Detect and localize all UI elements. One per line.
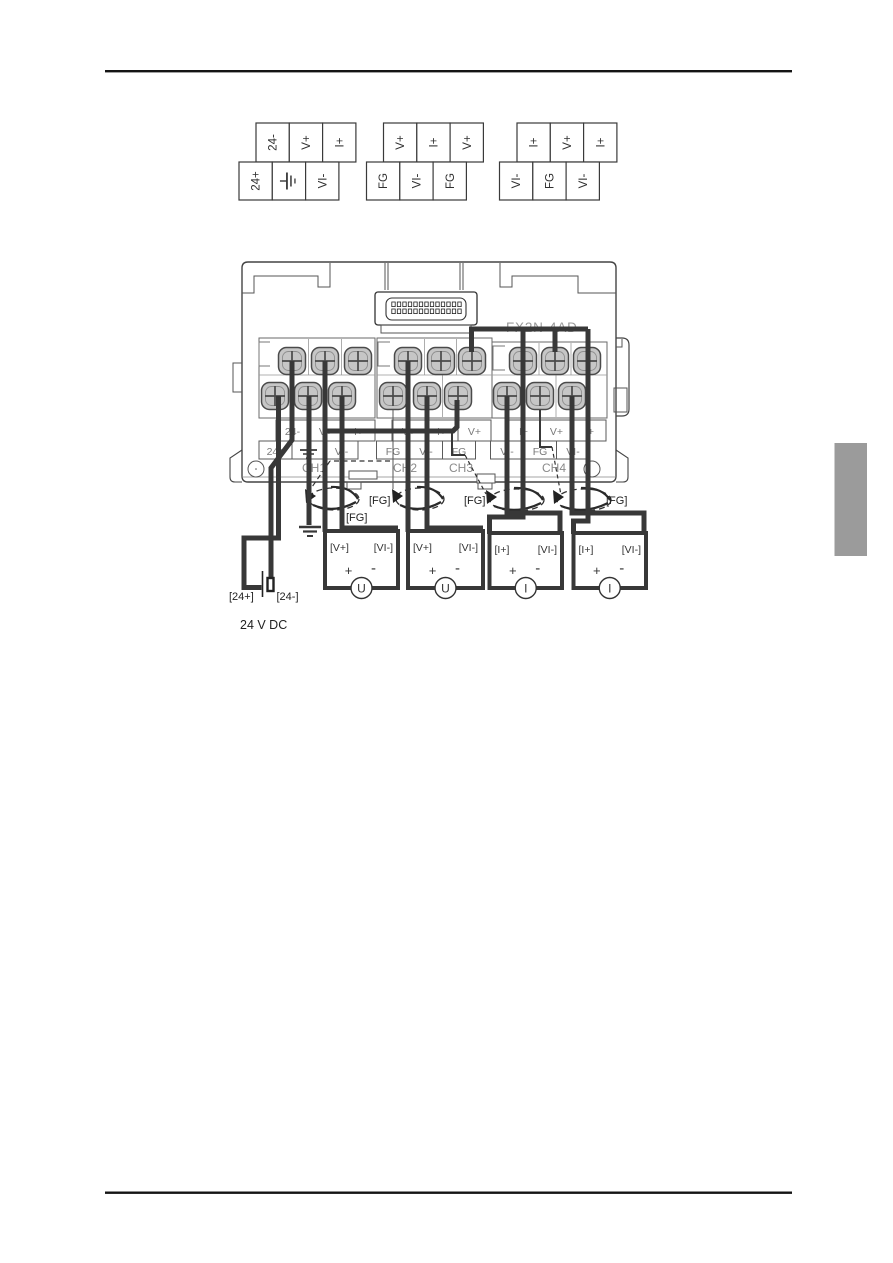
manual-page: 24-V+I+24+VI-V+I+V+FGVI-FGI+V+I+VI-FGVI-… <box>0 0 893 1263</box>
source-plus-sign: + <box>345 563 353 578</box>
meter-type-label: I <box>524 582 527 596</box>
module-terminal-label: V+ <box>550 426 563 438</box>
case-step-right <box>500 263 616 293</box>
channel-label: CH2 <box>393 461 417 475</box>
module-terminal-label: FG <box>452 446 467 458</box>
earth-ground-icon <box>299 527 321 536</box>
ref-terminal-label: 24- <box>268 134 280 151</box>
case-right-notch <box>616 339 622 347</box>
case-left-bracket <box>233 363 242 392</box>
module-terminal-label: V+ <box>468 426 481 438</box>
shield-arrowhead <box>392 489 403 503</box>
signal-source-box: [V+][VI-]+-U <box>408 531 483 599</box>
source-minus-sign: - <box>371 560 376 577</box>
connector-pin <box>430 309 433 314</box>
terminal-screw-icon <box>428 348 455 375</box>
connector-pin <box>408 302 411 307</box>
source-minus-sign: - <box>619 560 624 577</box>
battery-negative-label: [24-] <box>277 591 299 603</box>
meter-type-label: U <box>357 582 366 596</box>
battery-plate-short <box>268 578 274 591</box>
case-step-left <box>242 263 330 293</box>
case-foot-left <box>347 482 361 489</box>
source-neg-label: [VI-] <box>622 544 641 556</box>
module-left-ear <box>230 450 242 482</box>
connector-pin <box>414 309 417 314</box>
ref-terminal-label: VI- <box>317 173 329 188</box>
shielded-twisted-pair-icon <box>553 488 611 511</box>
ref-terminal-label: I+ <box>428 137 440 147</box>
connector-pin <box>408 309 411 314</box>
terminal-screw-icon <box>527 383 554 410</box>
connector-pin <box>403 302 406 307</box>
source-pos-label: [V+] <box>413 542 432 554</box>
source-pos-label: [I+] <box>495 544 510 556</box>
fg-label-ch4: [FG] <box>606 495 627 507</box>
connector-pin <box>458 309 461 314</box>
wire-ch4-vi-minus <box>572 396 644 534</box>
fg-label-ch1: [FG] <box>346 512 367 524</box>
module-right-ear <box>616 450 628 482</box>
signal-sources: [V+][VI-]+-U[V+][VI-]+-U[I+][VI-]+-I[I+]… <box>325 531 646 599</box>
ref-terminal-label: V+ <box>462 135 474 150</box>
ref-terminal-label: FG <box>544 173 556 189</box>
ref-terminal-label: I+ <box>334 137 346 147</box>
signal-source-box: [I+][VI-]+-I <box>490 533 563 599</box>
source-pos-label: [I+] <box>579 544 594 556</box>
ref-terminal-label: VI- <box>511 173 523 188</box>
extension-connector <box>375 292 477 333</box>
ref-terminal-label: I+ <box>595 137 607 147</box>
connector-pin <box>452 302 455 307</box>
connector-pin <box>436 309 439 314</box>
source-neg-label: [VI-] <box>538 544 557 556</box>
shield-arrowhead <box>486 490 497 504</box>
shield-twist-symbols <box>305 487 611 511</box>
source-neg-label: [VI-] <box>374 542 393 554</box>
connector-pin <box>419 302 422 307</box>
connector-pin <box>425 309 428 314</box>
terminal-screw-icon <box>345 348 372 375</box>
channel-label: CH4 <box>542 461 566 475</box>
meter-type-label: U <box>441 582 450 596</box>
ref-terminal-cell <box>272 162 305 200</box>
connector-pins <box>392 302 461 314</box>
connector-pin <box>425 302 428 307</box>
terminal-screw-icon <box>380 383 407 410</box>
connector-pin <box>414 302 417 307</box>
case-ribs <box>385 263 463 290</box>
shield-arrowhead <box>553 490 564 504</box>
source-pos-label: [V+] <box>330 542 349 554</box>
connector-pin <box>392 302 395 307</box>
shielded-twisted-pair-icon <box>305 487 359 510</box>
ref-terminal-label: I+ <box>529 137 541 147</box>
connector-pin <box>447 309 450 314</box>
header-rule <box>105 70 792 72</box>
terminal-screws <box>262 348 601 410</box>
connector-pin <box>436 302 439 307</box>
source-minus-sign: - <box>455 560 460 577</box>
source-plus-sign: + <box>509 563 517 578</box>
terminal-reference-tables: 24-V+I+24+VI-V+I+V+FGVI-FGI+V+I+VI-FGVI- <box>239 123 617 200</box>
signal-source-box: [I+][VI-]+-I <box>574 533 647 599</box>
mounting-hole-left-dot <box>255 468 257 470</box>
footer-rule <box>105 1192 792 1194</box>
source-neg-label: [VI-] <box>459 542 478 554</box>
connector-pin <box>452 309 455 314</box>
battery-positive-label: [24+] <box>229 591 254 603</box>
legend-rect-ch1 <box>349 471 377 479</box>
fg-label-ch2: [FG] <box>369 495 390 507</box>
connector-pin <box>403 309 406 314</box>
ref-terminal-label: VI- <box>578 173 590 188</box>
connector-pin <box>430 302 433 307</box>
connector-pin <box>458 302 461 307</box>
connector-pin <box>392 309 395 314</box>
signal-source-box: [V+][VI-]+-U <box>325 531 398 599</box>
battery-caption: 24 V DC <box>240 618 287 632</box>
ref-terminal-label: 24+ <box>251 171 263 191</box>
connector-pin <box>441 302 444 307</box>
ref-terminal-label: V+ <box>395 135 407 150</box>
shielded-twisted-pair-icon <box>392 487 444 510</box>
connector-pin <box>397 302 400 307</box>
ref-terminal-label: FG <box>378 173 390 189</box>
fg-label-ch3: [FG] <box>464 495 485 507</box>
ref-terminal-label: V+ <box>562 135 574 150</box>
connector-pin <box>419 309 422 314</box>
connector-base <box>381 325 471 333</box>
connector-pin <box>447 302 450 307</box>
ref-terminal-label: V+ <box>301 135 313 150</box>
meter-type-label: I <box>608 582 611 596</box>
terminal-screw-icon <box>262 383 289 410</box>
chapter-tab <box>835 443 868 556</box>
source-plus-sign: + <box>593 563 601 578</box>
connector-pin <box>397 309 400 314</box>
shielded-twisted-pair-icon <box>486 488 544 511</box>
connector-pin <box>441 309 444 314</box>
ref-terminal-label: VI- <box>411 173 423 188</box>
source-plus-sign: + <box>429 563 437 578</box>
source-minus-sign: - <box>535 560 540 577</box>
ref-terminal-label: FG <box>445 173 457 189</box>
